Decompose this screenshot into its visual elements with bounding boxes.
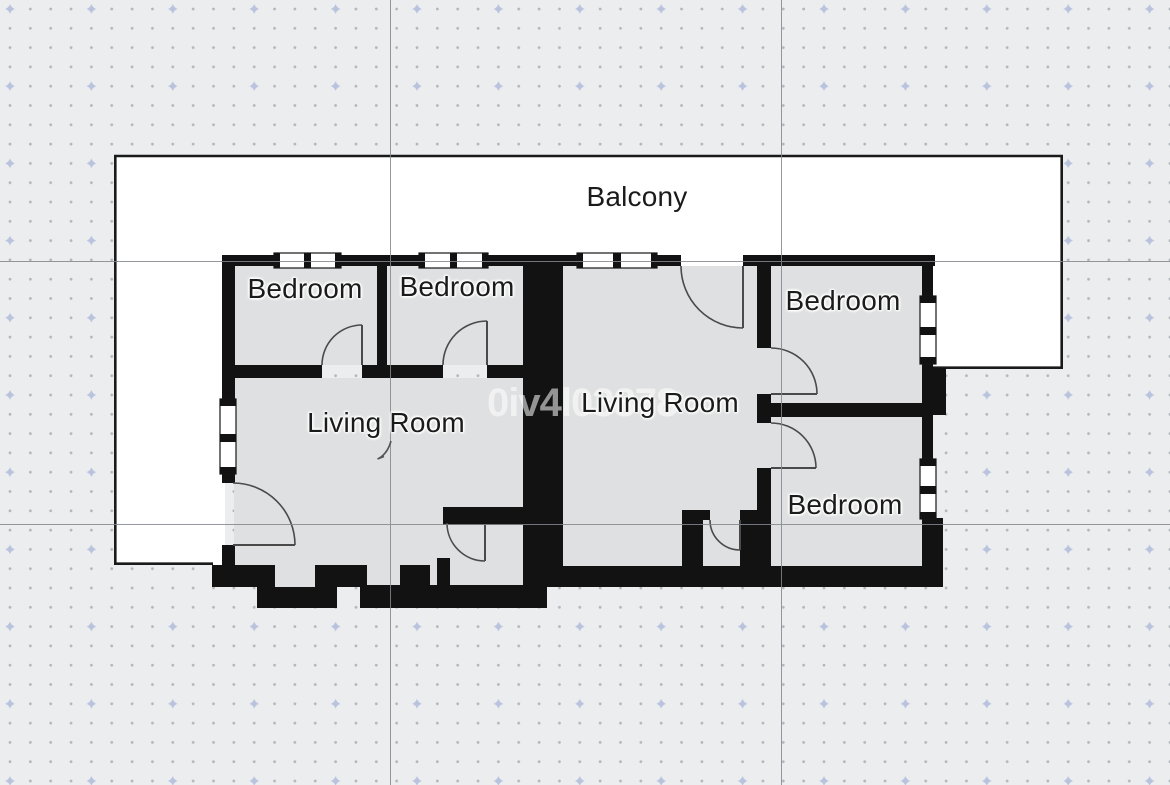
label-bedroom-4[interactable]: Bedroom — [787, 489, 902, 521]
window-left — [220, 399, 236, 474]
window-right-2 — [920, 459, 936, 519]
window-right-1 — [920, 296, 936, 364]
window-top-2 — [419, 253, 488, 268]
window-top-1 — [274, 253, 341, 268]
window-top-3 — [577, 253, 657, 268]
floor-plan-canvas[interactable]: 0iv4l03878 Balcony Bedroom Bedroom Livin… — [0, 0, 1170, 785]
room-floor-notch — [367, 565, 400, 587]
label-bedroom-3[interactable]: Bedroom — [785, 285, 900, 317]
label-living-room-1[interactable]: Living Room — [307, 407, 465, 439]
room-floor-entry-left[interactable] — [450, 525, 523, 585]
label-bedroom-1[interactable]: Bedroom — [247, 273, 362, 305]
room-floor-notch — [275, 565, 315, 587]
label-living-room-2[interactable]: Living Room — [581, 387, 739, 419]
label-balcony[interactable]: Balcony — [586, 181, 687, 213]
label-bedroom-2[interactable]: Bedroom — [399, 271, 514, 303]
